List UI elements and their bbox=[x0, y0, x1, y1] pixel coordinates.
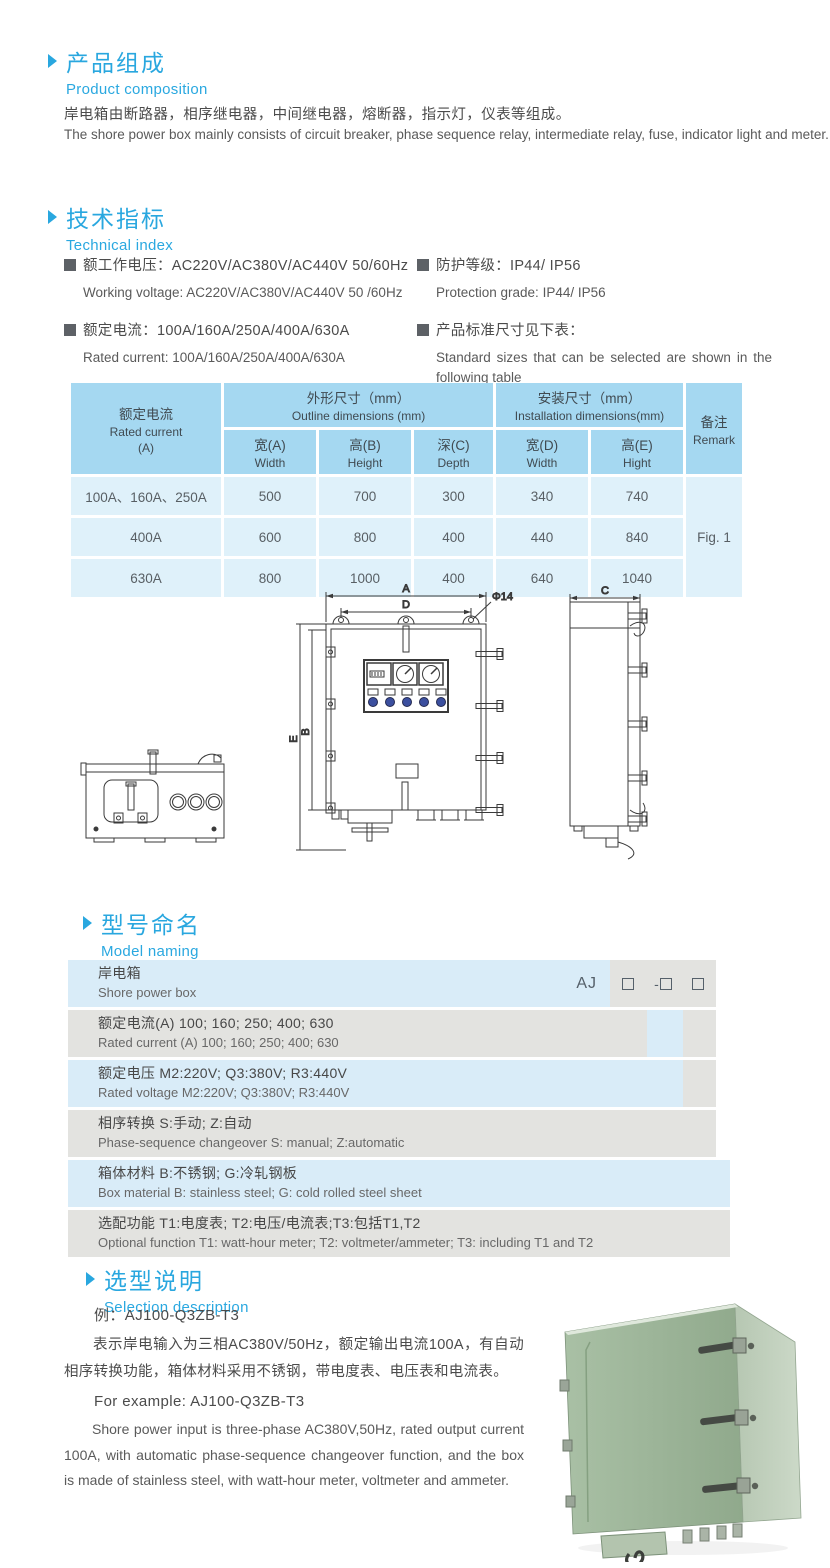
spec-zh-text: 额工作电压：AC220V/AC380V/AC440V 50/60Hz bbox=[83, 254, 408, 275]
dim-label-b: B bbox=[300, 728, 312, 735]
model-prefix: AJ bbox=[576, 975, 597, 993]
section-technical-index-heading: 技术指标 Technical index bbox=[48, 200, 173, 254]
model-naming-table: 岸电箱 Shore power box AJ - 额定电流(A) 100; 16… bbox=[68, 960, 745, 1260]
product-photo bbox=[543, 1290, 830, 1567]
cell-height-b: 800 bbox=[319, 518, 411, 556]
cell-depth-c: 400 bbox=[414, 518, 493, 556]
model-row-box-material: 箱体材料 B:不锈钢; G:冷轧钢板 Box material B: stain… bbox=[68, 1160, 730, 1207]
model-row-en: Box material B: stainless steel; G: cold… bbox=[98, 1185, 730, 1201]
model-row-rated-voltage: 额定电压 M2:220V; Q3:380V; R3:440V Rated vol… bbox=[68, 1060, 716, 1107]
spec-rated-current: 额定电流：100A/160A/250A/400A/630A Rated curr… bbox=[64, 319, 417, 368]
dimension-table: 额定电流 Rated current (A) 外形尺寸（mm） Outline … bbox=[68, 380, 745, 600]
spec-en-text: Rated current: 100A/160A/250A/400A/630A bbox=[83, 348, 417, 368]
selection-description-text: 例：AJ100-Q3ZB-T3 表示岸电输入为三相AC380V/50Hz，额定输… bbox=[64, 1304, 524, 1494]
model-row-en: Optional function T1: watt-hour meter; T… bbox=[98, 1235, 730, 1251]
drawing-front-view: A D Φ14 E bbox=[288, 583, 513, 850]
technical-drawing-fig1: A D Φ14 E bbox=[78, 582, 746, 884]
dim-label-e: E bbox=[288, 735, 300, 742]
drawing-bottom-view bbox=[81, 750, 224, 842]
section-model-naming-heading: 型号命名 Model naming bbox=[83, 906, 201, 960]
th-rated-current-zh: 额定电流 bbox=[73, 403, 219, 423]
section-title-en: Product composition bbox=[66, 81, 208, 98]
model-row-zh: 相序转换 S:手动; Z:自动 bbox=[98, 1115, 716, 1132]
model-row-phase-sequence: 相序转换 S:手动; Z:自动 Phase-sequence changeove… bbox=[68, 1110, 716, 1157]
model-row-zh: 额定电流(A) 100; 160; 250; 400; 630 bbox=[98, 1015, 716, 1032]
model-row-rated-current: 额定电流(A) 100; 160; 250; 400; 630 Rated cu… bbox=[68, 1010, 716, 1057]
square-bullet-icon bbox=[417, 259, 429, 271]
th-rated-current-en: Rated current bbox=[73, 425, 219, 439]
section-title-zh: 产品组成 bbox=[66, 44, 166, 78]
th-depth-c: 深(C)Depth bbox=[414, 430, 493, 474]
th-rated-current: 额定电流 Rated current (A) bbox=[71, 383, 221, 474]
model-code-box-voltage bbox=[660, 978, 672, 990]
model-row-en: Rated current (A) 100; 160; 250; 400; 63… bbox=[98, 1035, 716, 1051]
model-code-box-current bbox=[622, 978, 634, 990]
selection-paragraph-zh: 表示岸电输入为三相AC380V/50Hz，额定输出电流100A，有自动相序转换功… bbox=[64, 1332, 524, 1386]
selection-paragraph-en: Shore power input is three-phase AC380V,… bbox=[64, 1417, 524, 1495]
th-remark-en: Remark bbox=[688, 433, 740, 447]
model-row-zh: 岸电箱 bbox=[98, 965, 610, 982]
th-rated-current-unit: (A) bbox=[73, 441, 219, 455]
spec-zh-text: 额定电流：100A/160A/250A/400A/630A bbox=[83, 319, 350, 340]
composition-paragraph-zh: 岸电箱由断路器，相序继电器，中间继电器，熔断器，指示灯，仪表等组成。 bbox=[64, 103, 571, 124]
cell-width-d: 340 bbox=[496, 477, 588, 515]
th-width-a: 宽(A)Width bbox=[224, 430, 316, 474]
dim-label-d: D bbox=[402, 599, 410, 611]
section-title-zh: 选型说明 bbox=[104, 1262, 204, 1296]
table-row: 400A 600 800 400 440 840 bbox=[71, 518, 742, 556]
control-panel bbox=[364, 660, 448, 712]
latch-details bbox=[476, 649, 503, 816]
model-row-en: Shore power box bbox=[98, 985, 610, 1001]
th-outline-zh: 外形尺寸（mm） bbox=[226, 387, 491, 407]
cell-current: 100A、160A、250A bbox=[71, 477, 221, 515]
cell-depth-c: 300 bbox=[414, 477, 493, 515]
spec-working-voltage: 额工作电压：AC220V/AC380V/AC440V 50/60Hz Worki… bbox=[64, 254, 417, 303]
spec-standard-sizes: 产品标准尺寸见下表： Standard sizes that can be se… bbox=[417, 319, 772, 388]
page: 产品组成 Product composition 岸电箱由断路器，相序继电器，中… bbox=[0, 0, 830, 1568]
spec-en-text: Protection grade: IP44/ IP56 bbox=[436, 283, 772, 303]
section-arrow-icon bbox=[83, 916, 92, 930]
model-row-en: Rated voltage M2:220V; Q3:380V; R3:440V bbox=[98, 1085, 716, 1101]
model-row-zh: 额定电压 M2:220V; Q3:380V; R3:440V bbox=[98, 1065, 716, 1082]
cell-current: 400A bbox=[71, 518, 221, 556]
cell-hight-e: 740 bbox=[591, 477, 683, 515]
composition-paragraph-en: The shore power box mainly consists of c… bbox=[64, 127, 829, 142]
th-width-d: 宽(D)Width bbox=[496, 430, 588, 474]
cell-height-b: 700 bbox=[319, 477, 411, 515]
spec-zh-text: 产品标准尺寸见下表： bbox=[436, 319, 584, 340]
dim-label-c: C bbox=[601, 585, 609, 597]
dim-label-phi14: Φ14 bbox=[492, 591, 513, 603]
spec-zh-text: 防护等级：IP44/ IP56 bbox=[436, 254, 581, 275]
cell-width-d: 440 bbox=[496, 518, 588, 556]
th-hight-e: 高(E)Hight bbox=[591, 430, 683, 474]
model-code-box-option bbox=[692, 978, 704, 990]
section-arrow-icon bbox=[48, 210, 57, 224]
table-row: 100A、160A、250A 500 700 300 340 740 Fig. … bbox=[71, 477, 742, 515]
model-row-zh: 箱体材料 B:不锈钢; G:冷轧钢板 bbox=[98, 1165, 730, 1182]
section-arrow-icon bbox=[48, 54, 57, 68]
section-arrow-icon bbox=[86, 1272, 95, 1286]
model-row-zh: 选配功能 T1:电度表; T2:电压/电流表;T3:包括T1,T2 bbox=[98, 1215, 730, 1232]
cell-hight-e: 840 bbox=[591, 518, 683, 556]
drawing-side-view: C bbox=[570, 585, 647, 859]
spec-en-text: Working voltage: AC220V/AC380V/AC440V 50… bbox=[83, 283, 417, 303]
cell-remark: Fig. 1 bbox=[686, 477, 742, 597]
th-install-en: Installation dimensions(mm) bbox=[498, 409, 681, 423]
th-remark: 备注 Remark bbox=[686, 383, 742, 474]
section-title-en: Model naming bbox=[101, 943, 201, 960]
th-height-b: 高(B)Height bbox=[319, 430, 411, 474]
model-row-en: Phase-sequence changeover S: manual; Z:a… bbox=[98, 1135, 716, 1151]
indicator-lamps bbox=[368, 689, 446, 707]
th-remark-zh: 备注 bbox=[688, 411, 740, 431]
th-outline-en: Outline dimensions (mm) bbox=[226, 409, 491, 423]
side-latches bbox=[628, 609, 647, 826]
example-model-en: For example: AJ100-Q3ZB-T3 bbox=[64, 1393, 524, 1410]
square-bullet-icon bbox=[417, 324, 429, 336]
th-outline-dimensions: 外形尺寸（mm） Outline dimensions (mm) bbox=[224, 383, 493, 427]
section-title-en: Technical index bbox=[66, 237, 173, 254]
square-bullet-icon bbox=[64, 259, 76, 271]
model-code-boxes: - bbox=[610, 960, 716, 1007]
section-title-zh: 型号命名 bbox=[101, 906, 201, 940]
cell-width-a: 600 bbox=[224, 518, 316, 556]
cell-width-a: 500 bbox=[224, 477, 316, 515]
example-model-zh: 例：AJ100-Q3ZB-T3 bbox=[64, 1304, 524, 1325]
model-row-shore-power-box: 岸电箱 Shore power box AJ - bbox=[68, 960, 716, 1007]
th-install-zh: 安装尺寸（mm） bbox=[498, 387, 681, 407]
spec-protection-grade: 防护等级：IP44/ IP56 Protection grade: IP44/ … bbox=[417, 254, 772, 303]
model-row-optional-function: 选配功能 T1:电度表; T2:电压/电流表;T3:包括T1,T2 Option… bbox=[68, 1210, 730, 1257]
dim-label-a: A bbox=[402, 583, 410, 595]
th-installation-dimensions: 安装尺寸（mm） Installation dimensions(mm) bbox=[496, 383, 683, 427]
section-product-composition-heading: 产品组成 Product composition bbox=[48, 44, 208, 98]
square-bullet-icon bbox=[64, 324, 76, 336]
model-code-dash: - bbox=[654, 976, 659, 992]
section-title-zh: 技术指标 bbox=[66, 200, 166, 234]
